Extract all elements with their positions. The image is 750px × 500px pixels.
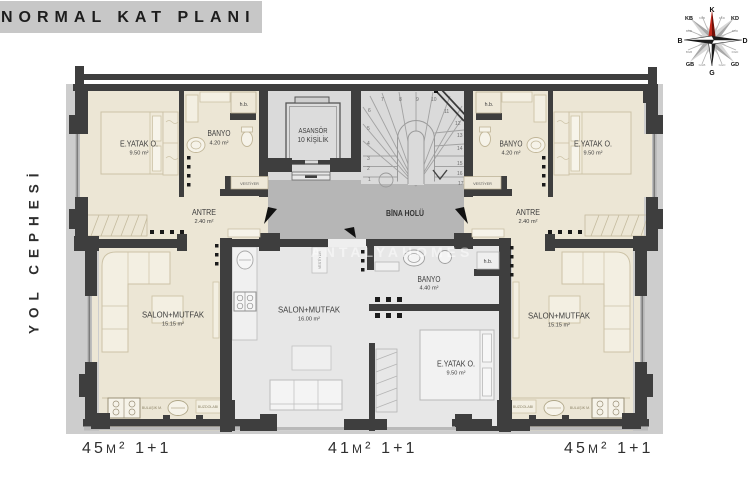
svg-text:7: 7 bbox=[381, 97, 384, 103]
svg-text:GGB: GGB bbox=[699, 63, 706, 67]
svg-text:h.b.: h.b. bbox=[240, 102, 249, 108]
svg-text:9.50 m²: 9.50 m² bbox=[584, 151, 603, 157]
svg-text:17: 17 bbox=[458, 181, 464, 187]
svg-text:45M² 1+1: 45M² 1+1 bbox=[564, 440, 654, 457]
svg-text:2: 2 bbox=[367, 166, 370, 172]
svg-text:9: 9 bbox=[416, 97, 419, 103]
svg-text:BANYO: BANYO bbox=[208, 129, 231, 138]
svg-text:15.15 m²: 15.15 m² bbox=[162, 322, 184, 328]
svg-text:GB: GB bbox=[686, 62, 694, 68]
svg-text:1: 1 bbox=[368, 177, 371, 183]
svg-text:15.15 m²: 15.15 m² bbox=[548, 323, 570, 329]
svg-text:ANTRE: ANTRE bbox=[516, 208, 540, 217]
svg-text:YOL CEPHESİ: YOL CEPHESİ bbox=[27, 166, 42, 334]
svg-text:BANYO: BANYO bbox=[418, 275, 441, 284]
svg-text:E.YATAK O.: E.YATAK O. bbox=[437, 360, 475, 369]
svg-text:SALON+MUTFAK: SALON+MUTFAK bbox=[142, 311, 205, 320]
svg-text:G: G bbox=[709, 70, 715, 77]
svg-text:ASANSÖR: ASANSÖR bbox=[299, 126, 328, 135]
svg-text:VESTİYER: VESTİYER bbox=[240, 181, 259, 186]
svg-text:3: 3 bbox=[367, 156, 370, 162]
svg-text:4.20 m²: 4.20 m² bbox=[502, 151, 521, 157]
svg-text:5: 5 bbox=[367, 126, 370, 132]
svg-text:BKB: BKB bbox=[686, 29, 692, 33]
svg-text:BUZDOLABI: BUZDOLABI bbox=[198, 405, 218, 409]
svg-text:4.40 m²: 4.40 m² bbox=[420, 286, 439, 292]
svg-text:E.YATAK O.: E.YATAK O. bbox=[120, 140, 158, 149]
svg-text:K: K bbox=[709, 7, 714, 14]
svg-text:ANTRE: ANTRE bbox=[192, 208, 216, 217]
svg-text:16.00 m²: 16.00 m² bbox=[298, 317, 320, 323]
svg-text:2.40 m²: 2.40 m² bbox=[519, 219, 538, 225]
svg-text:13: 13 bbox=[457, 133, 463, 139]
svg-text:10: 10 bbox=[431, 97, 437, 103]
svg-text:DGD: DGD bbox=[732, 50, 740, 54]
svg-text:B: B bbox=[677, 38, 682, 45]
svg-text:h.b.: h.b. bbox=[484, 259, 493, 265]
svg-text:KKD: KKD bbox=[719, 16, 726, 20]
svg-text:8: 8 bbox=[399, 97, 402, 103]
svg-text:D: D bbox=[742, 38, 747, 45]
svg-text:E.YATAK O.: E.YATAK O. bbox=[574, 140, 612, 149]
svg-text:41M² 1+1: 41M² 1+1 bbox=[328, 440, 418, 457]
svg-text:11: 11 bbox=[444, 109, 449, 115]
svg-text:DKD: DKD bbox=[732, 29, 739, 33]
svg-text:SALON+MUTFAK: SALON+MUTFAK bbox=[528, 312, 591, 321]
svg-text:NORMAL KAT PLANI: NORMAL KAT PLANI bbox=[1, 9, 256, 26]
svg-text:SALON+MUTFAK: SALON+MUTFAK bbox=[278, 306, 341, 315]
svg-text:KD: KD bbox=[731, 16, 739, 22]
svg-text:6: 6 bbox=[368, 108, 371, 114]
svg-text:BULAŞIK M.: BULAŞIK M. bbox=[142, 406, 162, 410]
svg-text:2.40 m²: 2.40 m² bbox=[195, 219, 214, 225]
svg-text:15: 15 bbox=[457, 161, 463, 167]
svg-text:BUZDOLABI: BUZDOLABI bbox=[513, 405, 533, 409]
svg-text:9.50 m²: 9.50 m² bbox=[130, 151, 149, 157]
svg-text:BİNA HOLÜ: BİNA HOLÜ bbox=[386, 208, 424, 218]
svg-text:BGB: BGB bbox=[686, 50, 692, 54]
svg-text:9.50 m²: 9.50 m² bbox=[447, 371, 466, 377]
svg-text:14: 14 bbox=[457, 146, 463, 152]
svg-text:h.b.: h.b. bbox=[485, 102, 494, 108]
svg-text:GGD: GGD bbox=[719, 63, 727, 67]
svg-text:VESTİYER: VESTİYER bbox=[473, 181, 492, 186]
svg-text:12: 12 bbox=[455, 121, 461, 127]
svg-text:4: 4 bbox=[367, 141, 370, 147]
svg-text:BANYO: BANYO bbox=[500, 140, 523, 149]
svg-text:16: 16 bbox=[457, 171, 463, 177]
svg-text:10 KİŞİLİK: 10 KİŞİLİK bbox=[298, 135, 329, 144]
svg-text:KKB: KKB bbox=[699, 16, 705, 20]
svg-text:KB: KB bbox=[685, 16, 693, 22]
svg-text:ANTALYAHOMES: ANTALYAHOMES bbox=[311, 244, 474, 260]
svg-text:4.20 m²: 4.20 m² bbox=[210, 141, 229, 147]
svg-text:BULAŞIK M.: BULAŞIK M. bbox=[570, 406, 590, 410]
svg-text:45M² 1+1: 45M² 1+1 bbox=[82, 440, 172, 457]
svg-text:GD: GD bbox=[731, 62, 739, 68]
